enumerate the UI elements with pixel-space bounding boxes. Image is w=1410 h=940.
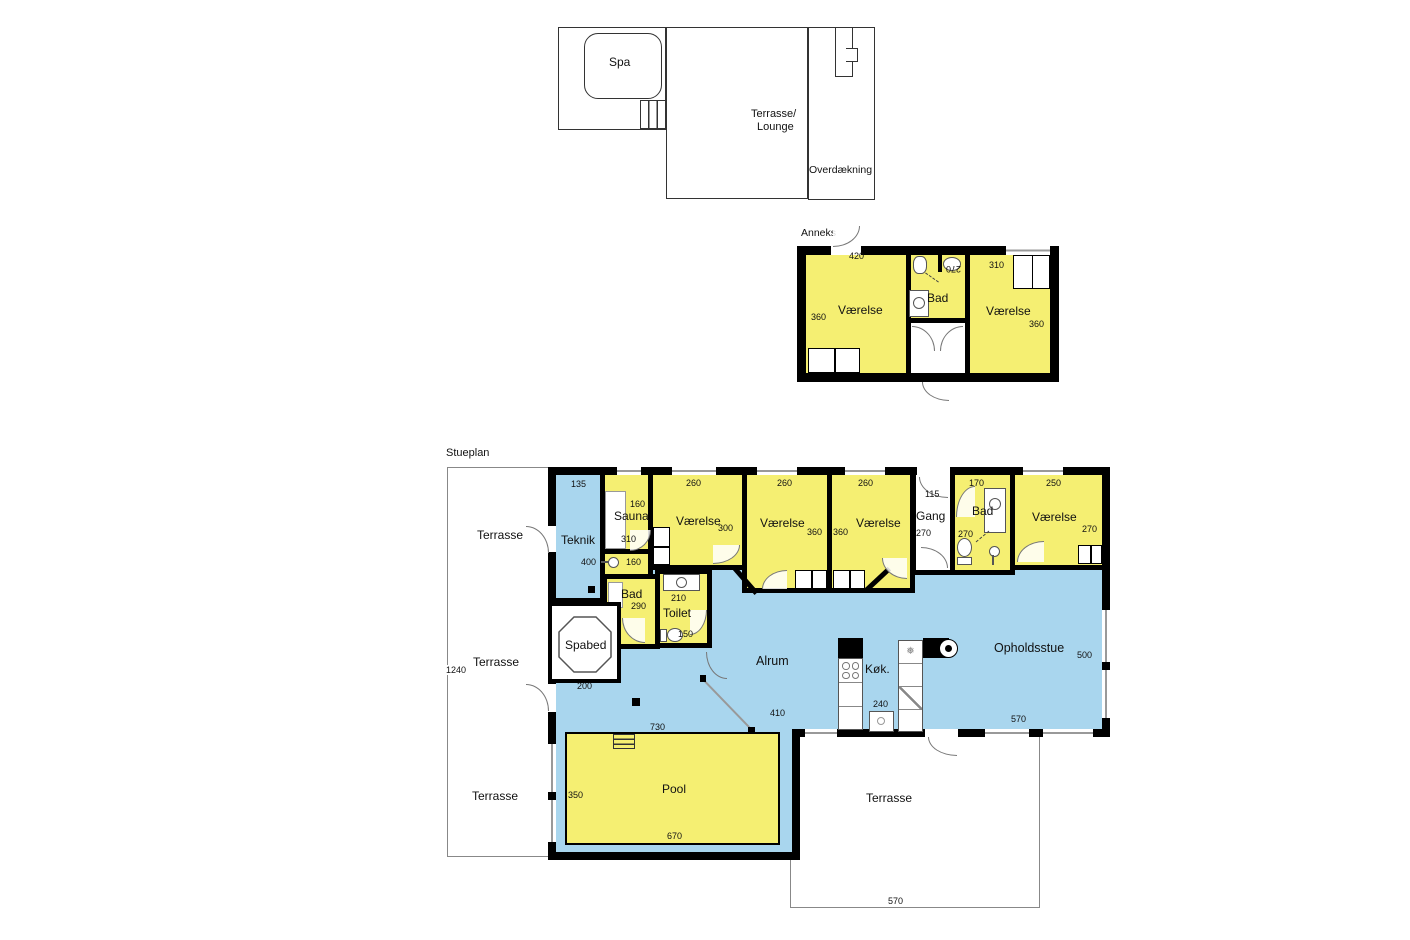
kitchen-name: Køk. xyxy=(865,662,890,676)
sauna-depth: 310 xyxy=(621,534,636,544)
window-north-1 xyxy=(617,467,641,475)
window-north-2 xyxy=(672,467,716,475)
lounge-label-line1: Terrasse/ xyxy=(751,108,796,120)
bedroom2-closet xyxy=(795,570,827,589)
window-north-3 xyxy=(757,467,797,475)
bedroom1-width: 260 xyxy=(686,478,701,488)
anneks-closet-right xyxy=(1013,255,1050,289)
bedroom4-name: Værelse xyxy=(1032,510,1077,524)
south-terrace-width: 570 xyxy=(886,896,905,906)
post-poolroom xyxy=(632,698,640,706)
bedroom4-width: 250 xyxy=(1046,478,1061,488)
anneks-left-depth: 360 xyxy=(811,312,826,322)
bath2-depth: 270 xyxy=(958,529,973,539)
living-width: 570 xyxy=(1011,714,1026,724)
bedroom2-width: 260 xyxy=(777,478,792,488)
toilet-depth: 150 xyxy=(678,629,693,639)
anneks-entry-door xyxy=(833,226,860,247)
stove-burners-icon xyxy=(842,662,859,679)
bath2-wc-tank xyxy=(957,557,972,565)
teknik-width: 135 xyxy=(571,479,586,489)
living-name: Opholdsstue xyxy=(994,641,1064,655)
cover-label: Overdækning xyxy=(809,164,872,176)
window-north-4 xyxy=(845,467,885,475)
bath1-depth: 290 xyxy=(631,601,646,611)
floor-plan: Spa Terrasse/ Lounge Overdækning Anneks … xyxy=(0,0,1410,940)
anneks-bath-depth: 270 xyxy=(946,264,961,274)
pool-width-bottom: 670 xyxy=(667,831,682,841)
bedroom2-name: Værelse xyxy=(760,516,805,530)
window-west-2 xyxy=(548,800,556,842)
gang-name: Gang xyxy=(916,509,945,523)
bedroom1-closet xyxy=(653,527,670,565)
anneks-washer-drum xyxy=(913,297,925,309)
sauna-name: Sauna xyxy=(614,509,649,523)
shower-width: 160 xyxy=(626,557,641,567)
post-teknik xyxy=(588,586,595,593)
alrum-door-end-1 xyxy=(700,675,706,682)
toilet-width: 210 xyxy=(671,593,686,603)
anneks-bath-name: Bad xyxy=(927,291,948,305)
anneks-south-door xyxy=(922,382,949,401)
bath2-name: Bad xyxy=(972,504,993,518)
south-door-gap xyxy=(925,729,958,737)
west-terrace-label-3: Terrasse xyxy=(472,789,518,803)
alrum-width-west: 730 xyxy=(650,722,665,732)
toilet-sink-basin xyxy=(676,577,687,588)
front-door-gap xyxy=(917,467,950,475)
anneks-right-name: Værelse xyxy=(986,304,1031,318)
teknik-door-gap xyxy=(548,526,556,552)
teknik-name: Teknik xyxy=(561,533,595,547)
window-south-1 xyxy=(805,729,837,737)
bedroom1-name: Værelse xyxy=(676,514,721,528)
south-terrace-label: Terrasse xyxy=(866,791,912,805)
window-east-1 xyxy=(1102,610,1110,662)
bedroom3-closet xyxy=(833,570,865,589)
window-south-3 xyxy=(1043,729,1093,737)
anneks-closet-left xyxy=(808,348,860,373)
bath2-floor-shower xyxy=(989,546,1000,557)
alrum-name: Alrum xyxy=(756,654,789,668)
pool-depth: 350 xyxy=(568,790,583,800)
shower-room-arm xyxy=(601,561,609,563)
pool-ladder xyxy=(613,734,635,749)
anneks-window xyxy=(1006,246,1050,255)
window-west-1 xyxy=(548,744,556,792)
wood-stove-center xyxy=(945,645,952,652)
spabed-name: Spabed xyxy=(565,638,606,652)
west-terrace-length: 1240 xyxy=(445,665,467,675)
window-south-2 xyxy=(985,729,1029,737)
anneks-title: Anneks xyxy=(801,227,836,239)
anneks-left-name: Værelse xyxy=(838,303,883,317)
anneks-bath-wall-stub xyxy=(938,250,942,272)
spa-steps xyxy=(640,100,667,129)
bedroom2-depth: 360 xyxy=(807,527,822,537)
window-north-5 xyxy=(1023,467,1063,475)
alrum-width: 410 xyxy=(770,708,785,718)
pool-name: Pool xyxy=(662,782,686,796)
lounge-label-line2: Lounge xyxy=(757,121,794,133)
bedroom4-depth: 270 xyxy=(1082,524,1097,534)
kitchen-counter-right: ❅ xyxy=(898,640,923,732)
spabed-width: 200 xyxy=(577,681,592,691)
chimney-notch xyxy=(846,48,858,62)
window-east-2 xyxy=(1102,670,1110,718)
bath1-name: Bad xyxy=(621,587,642,601)
bedroom3-width: 260 xyxy=(858,478,873,488)
bath2-floor-shower-arm xyxy=(992,555,994,565)
south-terrace xyxy=(790,737,1040,908)
west-terrace-label-2: Terrasse xyxy=(473,655,519,669)
bedroom3-name: Værelse xyxy=(856,516,901,530)
bedroom4-closet xyxy=(1078,545,1102,564)
kitchen-width: 240 xyxy=(873,699,888,709)
toilet-wc-tank xyxy=(660,629,667,642)
anneks-left-width: 420 xyxy=(849,251,864,261)
sauna-width: 160 xyxy=(630,499,645,509)
gang-depth: 270 xyxy=(916,528,931,538)
bath2-wc-bowl xyxy=(957,538,972,557)
gang-width: 115 xyxy=(925,489,939,499)
spa-label: Spa xyxy=(609,55,630,69)
stueplan-title: Stueplan xyxy=(446,447,489,459)
bath2-width: 170 xyxy=(969,478,984,488)
dishwasher-icon xyxy=(877,717,885,725)
teknik-depth: 400 xyxy=(581,557,596,567)
bedroom3-depth: 360 xyxy=(833,527,848,537)
anneks-right-width: 310 xyxy=(989,260,1004,270)
living-depth: 500 xyxy=(1077,650,1092,660)
kitchen-wall-left xyxy=(838,638,863,658)
alrum-door-end-2 xyxy=(748,727,755,734)
poolroom-door-gap xyxy=(548,684,556,712)
shower-room-head xyxy=(608,557,619,568)
west-terrace-label-1: Terrasse xyxy=(477,528,523,542)
anneks-right-depth: 360 xyxy=(1029,319,1044,329)
toilet-name: Toilet xyxy=(663,606,691,620)
bedroom1-depth: 300 xyxy=(718,523,733,533)
